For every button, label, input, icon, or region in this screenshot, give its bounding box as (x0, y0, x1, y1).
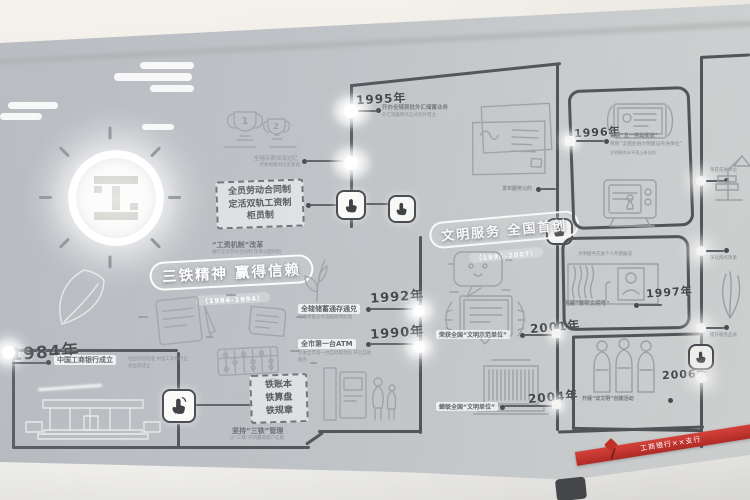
connector-line (310, 204, 336, 206)
hand-pointer-icon (393, 200, 410, 217)
timeline-node (413, 341, 425, 353)
icbc-logo (68, 150, 164, 246)
touch-hand-icon (336, 190, 366, 220)
connector-dot (46, 360, 51, 365)
trophy-number: 2 (273, 122, 279, 131)
connector-line (306, 160, 344, 162)
reform-caption: “工资机制”改革 (212, 240, 263, 250)
event-1990-caption: 全市第一台ATM (298, 339, 356, 349)
connector-line (12, 362, 48, 364)
event-1984-caption: 中国工商银行成立 (54, 355, 116, 365)
timeline-node (344, 156, 358, 170)
hand-pointer-icon (693, 349, 709, 365)
timeline-node (413, 305, 425, 317)
era1-title: 三铁精神 赢得信赖 (149, 254, 313, 291)
connector-line (366, 203, 388, 205)
three-iron-note: 以“三铁”作风赢得客户信赖 (230, 436, 334, 443)
event-1996-caption1: 荣获“五一劳动奖状” (610, 133, 690, 141)
cloud-icon (142, 124, 176, 132)
bank-building-icon (18, 394, 166, 444)
event-1990-year: 1990年 (369, 320, 424, 343)
connector-dot (376, 108, 381, 113)
trophy-number: 1 (242, 116, 249, 127)
right-panel-caption: 深化网点改革 (710, 256, 748, 263)
logo-ray (109, 127, 112, 140)
three-iron-caption: 坚持“三铁”管理 (232, 426, 283, 436)
event-1996-note: 文明服务水平再上新台阶 (610, 150, 690, 156)
atm-queue-icon (320, 364, 402, 428)
timeline-line (318, 430, 422, 433)
event-1995-caption: 开办全辖首批外汇储蓄业务 (382, 104, 472, 112)
right-panel-caption: 提升服务品质 (710, 333, 748, 340)
trophies-caption: 全辖存款双双过亿 (218, 155, 298, 163)
reform-line: 柜员制 (222, 209, 298, 224)
wall-content: 1 2 全辖存款双双过亿 存款规模创历史新高 全员劳动合同制 定活双轨工资制 柜… (0, 0, 750, 500)
event-1992-note: 实现储蓄业务电脑联网处理 (298, 315, 372, 322)
timeline-node (696, 323, 706, 333)
connector-dot (604, 139, 609, 144)
timeline-line (12, 446, 310, 449)
trophies-icon: 1 2 (220, 106, 304, 156)
event-1995-note: 外汇储蓄网点正式对外营业 (382, 113, 472, 120)
timeline-line (352, 62, 561, 87)
portrait-caption: 文明服务先进个人专题报道 (578, 252, 672, 259)
logo-ray (168, 196, 181, 199)
leaf-icon (50, 266, 118, 332)
timeline-line (572, 336, 575, 430)
decor-dash (206, 336, 213, 338)
three-people-icon (588, 336, 660, 394)
icbc-gong-symbol-icon (91, 173, 141, 223)
three-iron-line: 铁规章 (254, 404, 304, 419)
connector-line (370, 308, 414, 310)
event-1997-caption: 创建“青年文明号” (564, 300, 634, 308)
connector-line (706, 327, 724, 329)
notebook-pencil-icon (149, 291, 222, 352)
foreground-object (555, 476, 587, 500)
timeline-line (12, 354, 15, 448)
hand-pointer-icon (168, 395, 190, 417)
timeline-line (177, 424, 180, 448)
event-1984-note: 经国务院批准 中国工商银行正式挂牌成立 (128, 357, 190, 371)
connector-dot (724, 248, 729, 253)
timeline-node (696, 176, 706, 186)
connector-line (196, 404, 250, 406)
letters-stack-icon (461, 98, 564, 187)
connector-line (504, 405, 552, 407)
connector-line (540, 188, 556, 190)
event-1992-caption: 全辖储蓄通存通兑 (298, 304, 360, 314)
plant-sprig-icon (712, 264, 748, 318)
wheat-sprig-icon (298, 256, 336, 302)
timeline-node (696, 372, 707, 383)
trophies-note: 存款规模创历史新高 (220, 163, 300, 170)
connector-line (576, 140, 604, 142)
touch-hand-icon (688, 344, 714, 370)
hand-pointer-icon (342, 196, 361, 215)
connector-line (370, 343, 414, 345)
decor-dash (226, 294, 236, 296)
logo-ray (39, 196, 52, 199)
timeline-node (552, 329, 561, 338)
timeline-line (700, 53, 750, 59)
cloud-icon (0, 102, 60, 122)
timeline-node (552, 400, 561, 409)
connector-line (524, 334, 554, 336)
touch-hand-icon (388, 195, 416, 223)
touch-hand-icon (162, 389, 196, 423)
book-icon (242, 298, 295, 344)
photo-of-bank-history-wall: 1 2 全辖存款双双过亿 存款规模创历史新高 全员劳动合同制 定活双轨工资制 柜… (0, 0, 750, 500)
event-1990-note: 引进全市第一台自动取款机 开启自助服务 (298, 351, 372, 365)
connector-line (706, 250, 724, 252)
three-iron-box: 铁账本 铁算盘 铁规章 (249, 373, 309, 424)
cloud-icon (114, 60, 204, 94)
connector-line (358, 110, 376, 112)
connector-dot (668, 398, 673, 403)
event-2006-caption: 开展“双文明”创建活动 (582, 396, 670, 404)
letters-caption: 发布服务公约 (466, 186, 532, 194)
event-2004-caption: 蝉联全国“文明单位” (436, 402, 498, 411)
connector-line (638, 304, 662, 306)
timeline-node (696, 246, 706, 256)
event-1992-year: 1992年 (369, 284, 424, 307)
event-1996-caption2: 荣获“全国金融文明建设先进单位” (610, 141, 694, 148)
television-icon (600, 172, 666, 230)
reform-policy-box: 全员劳动合同制 定活双轨工资制 柜员制 (215, 178, 305, 229)
light-streak (38, 384, 102, 391)
timeline-node (565, 136, 575, 146)
connector-dot (724, 325, 729, 330)
certificate-laurel-icon (436, 290, 534, 352)
event-1997-year: 1997年 (645, 282, 693, 301)
desk-items-icon (712, 126, 750, 210)
timeline-node (2, 346, 15, 359)
decor-dash (138, 316, 148, 318)
event-2001-caption: 荣获全国“文明示范单位” (436, 330, 510, 339)
